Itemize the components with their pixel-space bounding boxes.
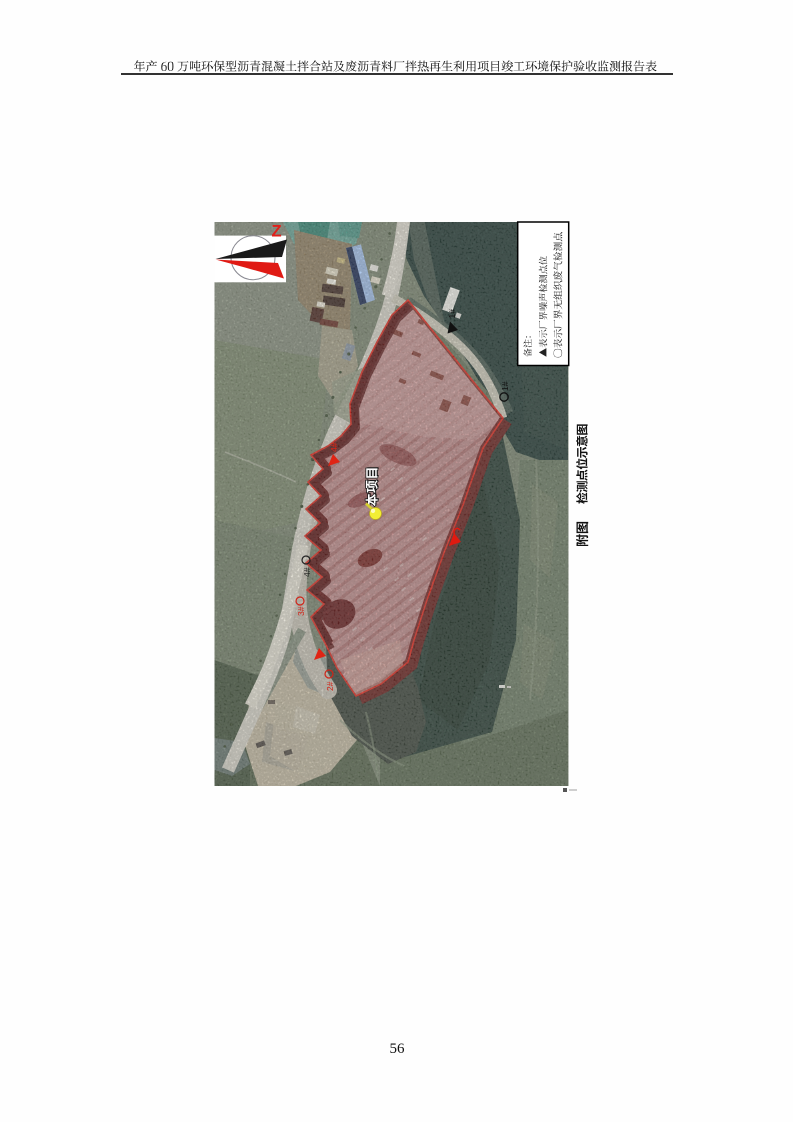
svg-text:Z: Z bbox=[272, 223, 282, 241]
svg-text:4#: 4# bbox=[302, 567, 312, 577]
svg-text:56: 56 bbox=[390, 1041, 406, 1057]
svg-text:1#: 1# bbox=[500, 381, 510, 391]
svg-text:1#: 1# bbox=[447, 309, 457, 319]
svg-text:4#: 4# bbox=[329, 442, 339, 452]
svg-text:3#: 3# bbox=[296, 606, 306, 616]
svg-text:2#: 2# bbox=[325, 681, 335, 691]
